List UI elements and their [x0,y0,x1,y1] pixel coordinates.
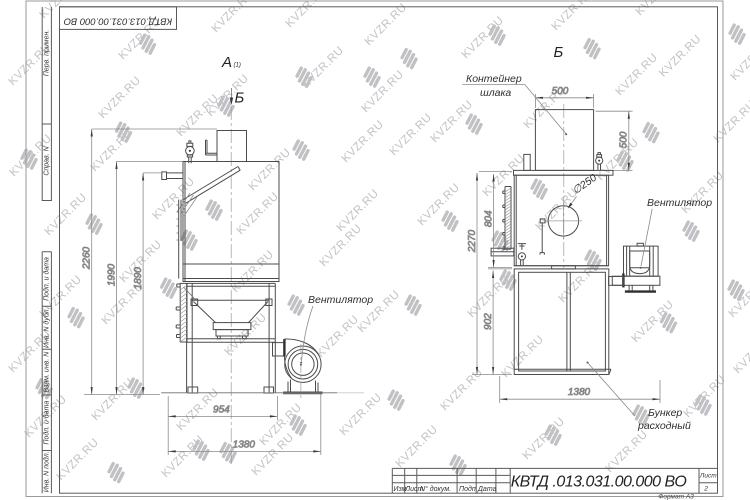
svg-text:KVZR.RU: KVZR.RU [223,311,270,358]
svg-text:Формат А3: Формат А3 [658,494,694,500]
svg-text:KVZR.RU: KVZR.RU [210,0,257,35]
svg-text:Дата: Дата [477,486,497,493]
svg-text:902: 902 [483,313,494,330]
svg-text:500: 500 [619,131,630,148]
svg-text:Б: Б [554,44,564,61]
svg-text:KVZR.RU: KVZR.RU [550,0,597,33]
svg-text:Вентилятор: Вентилятор [308,294,373,306]
svg-text:KVZR.RU: KVZR.RU [340,118,387,165]
svg-text:KVZR.RU: KVZR.RU [680,169,727,216]
svg-text:KVZR.RU: KVZR.RU [630,298,677,345]
svg-text:Вентилятор: Вентилятор [647,197,712,209]
svg-text:KVZR.RU: KVZR.RU [43,191,90,238]
svg-text:KVZR.RU: KVZR.RU [363,1,410,48]
svg-text:KVZR.RU: KVZR.RU [151,175,198,222]
svg-text:KVZR.RU: KVZR.RU [657,33,704,80]
svg-text:KVZR.RU: KVZR.RU [521,415,568,462]
svg-text:KVZR.RU: KVZR.RU [247,146,294,193]
svg-text:2260: 2260 [82,246,93,270]
svg-text:Справ. N: Справ. N [44,145,51,175]
svg-text:КВТД .013.031.00.000 ВО: КВТД .013.031.00.000 ВО [511,474,687,491]
svg-text:KVZR.RU: KVZR.RU [97,74,144,121]
svg-text:Подп. и дата: Подп. и дата [43,401,51,445]
svg-text:Инв. N подл.: Инв. N подл. [43,451,51,492]
svg-text:Лист: Лист [699,473,717,480]
svg-text:KVZR.RU: KVZR.RU [439,366,486,413]
svg-text:KVZR.RU: KVZR.RU [634,0,681,18]
svg-text:Взам. инв. N: Взам. инв. N [44,351,51,393]
svg-text:KVZR.RU: KVZR.RU [614,51,661,98]
svg-text:(1): (1) [234,63,241,69]
svg-text:шлака: шлака [480,87,511,99]
svg-text:KVZR.RU: KVZR.RU [388,111,435,158]
svg-text:Бункер: Бункер [648,407,682,419]
svg-text:954: 954 [213,404,230,415]
svg-text:804: 804 [483,210,494,227]
svg-text:KVZR.RU: KVZR.RU [481,152,528,199]
svg-text:1380: 1380 [233,439,256,450]
svg-text:Перв. примен.: Перв. примен. [44,30,51,77]
svg-text:KVZR.RU: KVZR.RU [338,391,385,438]
svg-text:KVZR.RU: KVZR.RU [55,436,102,483]
svg-text:KVZR.RU: KVZR.RU [416,181,463,228]
svg-text:KVZR.RU: KVZR.RU [315,313,362,360]
svg-text:Инв. N дубл.: Инв. N дубл. [43,307,51,348]
svg-text:КВТД.013.031.00.000 ВО: КВТД.013.031.00.000 ВО [63,16,172,27]
svg-text:KVZR.RU: KVZR.RU [394,423,441,470]
svg-text:2: 2 [703,486,708,493]
svg-text:1990: 1990 [106,263,117,286]
svg-text:KVZR.RU: KVZR.RU [732,329,750,376]
svg-text:Б: Б [235,90,245,107]
svg-text:N° докум.: N° докум. [420,485,451,493]
svg-text:Контейнер: Контейнер [466,73,522,85]
svg-text:1890: 1890 [133,267,144,290]
svg-text:1380: 1380 [568,387,591,398]
svg-text:Подп. и дата: Подп. и дата [43,257,51,301]
svg-text:KVZR.RU: KVZR.RU [235,190,282,237]
svg-text:расходный: расходный [637,420,691,432]
svg-text:А: А [221,54,232,71]
svg-text:2270: 2270 [467,229,478,253]
svg-text:KVZR.RU: KVZR.RU [500,333,547,380]
svg-text:KVZR.RU: KVZR.RU [284,0,331,30]
svg-text:500: 500 [552,86,569,97]
svg-text:Подп: Подп [459,485,476,493]
